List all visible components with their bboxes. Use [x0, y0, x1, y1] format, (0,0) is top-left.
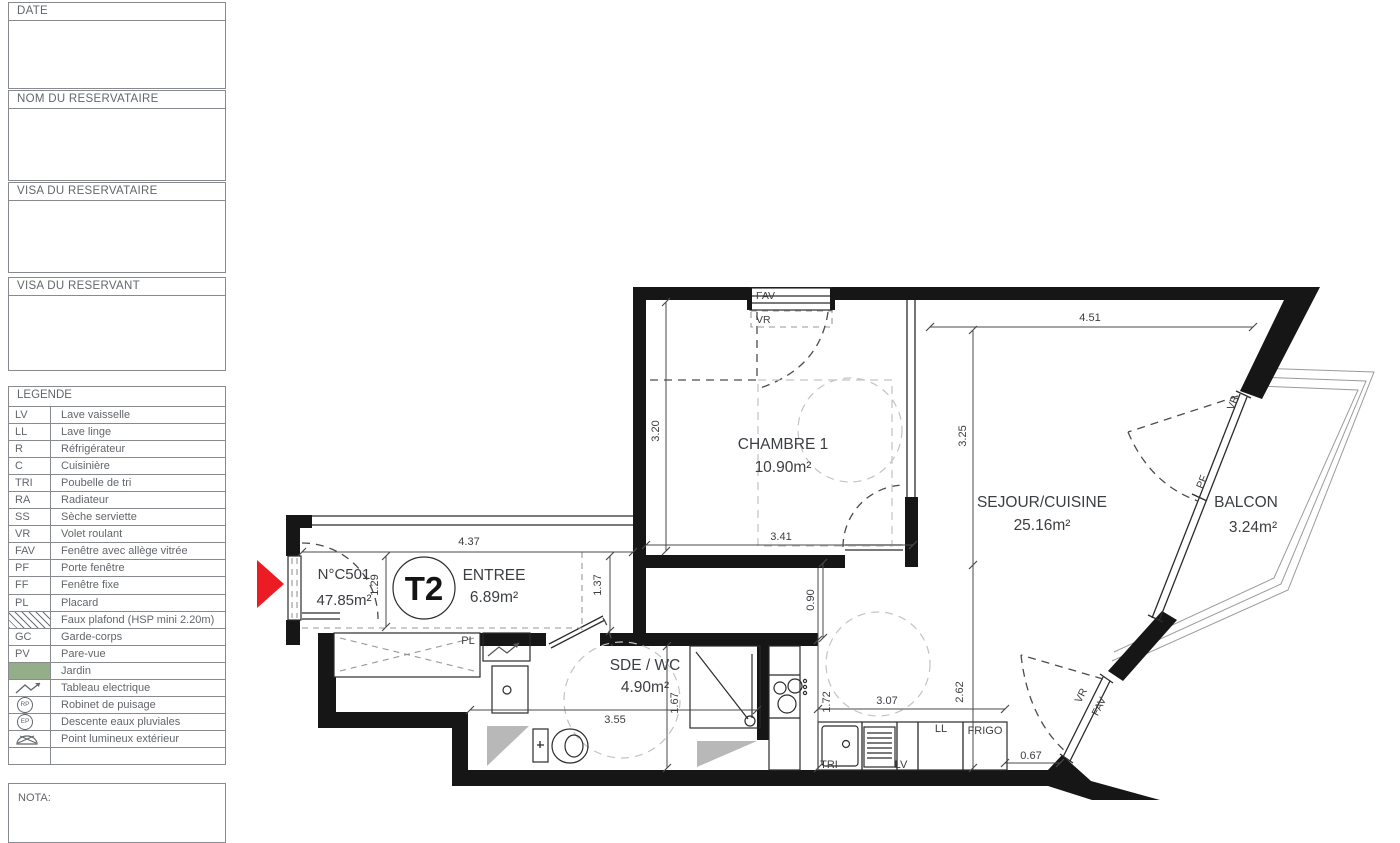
dim-1-72: 1.72	[821, 691, 833, 712]
dim-3-20: 3.20	[650, 420, 662, 441]
washbasin	[492, 666, 528, 713]
dim-3-41: 3.41	[770, 531, 791, 543]
unit-number: N°C501	[318, 566, 371, 583]
dim-4-37: 4.37	[458, 536, 479, 548]
unit-badge: T2	[393, 557, 455, 619]
room-chambre1-name: CHAMBRE 1	[738, 436, 828, 453]
label-lv: LV	[895, 759, 908, 771]
label-vr-top: VR	[756, 314, 771, 326]
shower	[690, 646, 760, 728]
label-frigo: FRIGO	[968, 725, 1003, 737]
room-balcon-name: BALCON	[1214, 494, 1278, 511]
dim-2-62: 2.62	[954, 681, 966, 702]
label-tri: TRI	[820, 759, 838, 771]
room-entree-name: ENTREE	[463, 567, 526, 584]
chambre-door	[843, 485, 905, 550]
dim-3-25: 3.25	[957, 425, 969, 446]
dim-3-55: 3.55	[604, 714, 625, 726]
dim-1-29: 1.29	[369, 574, 381, 595]
room-sde-area: 4.90m²	[621, 679, 669, 696]
room-sejour-area: 25.16m²	[1014, 517, 1071, 534]
dim-1-37: 1.37	[592, 574, 604, 595]
label-ll: LL	[935, 723, 947, 735]
dim-4-51: 4.51	[1079, 312, 1100, 324]
floor-plan: T2 N°C501 47.85m² CHAMBRE 1 10.90m² SEJO…	[0, 0, 1400, 800]
entrance-marker-arrow	[257, 560, 284, 608]
dim-0-90: 0.90	[805, 589, 817, 610]
window-fav-top	[747, 288, 835, 388]
label-fav-top: FAV	[756, 290, 775, 302]
room-sejour-name: SEJOUR/CUISINE	[977, 494, 1107, 511]
room-chambre1-area: 10.90m²	[755, 459, 812, 476]
dashed-furniture	[302, 312, 930, 758]
unit-area: 47.85m²	[316, 592, 371, 609]
placard	[334, 633, 480, 677]
room-entree-area: 6.89m²	[470, 589, 518, 606]
unit-type: T2	[405, 570, 444, 607]
label-vr-bottom: VR	[1073, 686, 1091, 705]
label-pl: PL	[461, 635, 474, 647]
dim-0-67: 0.67	[1020, 750, 1041, 762]
dim-3-07: 3.07	[876, 695, 897, 707]
room-balcon-area: 3.24m²	[1229, 519, 1277, 536]
room-sde-name: SDE / WC	[610, 657, 681, 674]
dim-1-67: 1.67	[669, 692, 681, 713]
toilet	[533, 729, 588, 763]
thin-walls	[312, 300, 915, 525]
corner-shading	[487, 726, 757, 767]
kitchen-counter	[769, 646, 1007, 770]
